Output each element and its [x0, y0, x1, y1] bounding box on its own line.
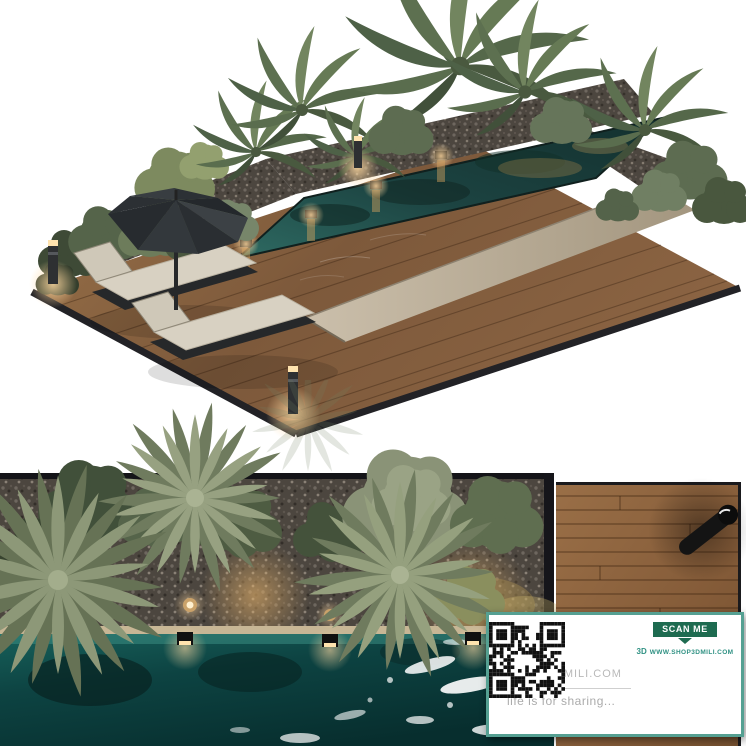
website-url: WWW.SHOP3DMILI.COM — [650, 649, 734, 656]
footer-mini-logo: 3D — [637, 648, 647, 656]
qr-block: SCAN ME 3D WWW.SHOP3DMILI.COM — [637, 621, 733, 728]
qr-code — [489, 622, 565, 698]
scan-me-arrow-icon — [678, 638, 692, 644]
brand-suffix: MILI.COM — [564, 670, 622, 679]
scan-me-banner: SCAN ME — [653, 622, 717, 637]
watermark-card: 3D MILI.COM life is for sharing... SCAN … — [486, 612, 744, 737]
render-image: 3D MILI.COM life is for sharing... SCAN … — [0, 0, 746, 746]
